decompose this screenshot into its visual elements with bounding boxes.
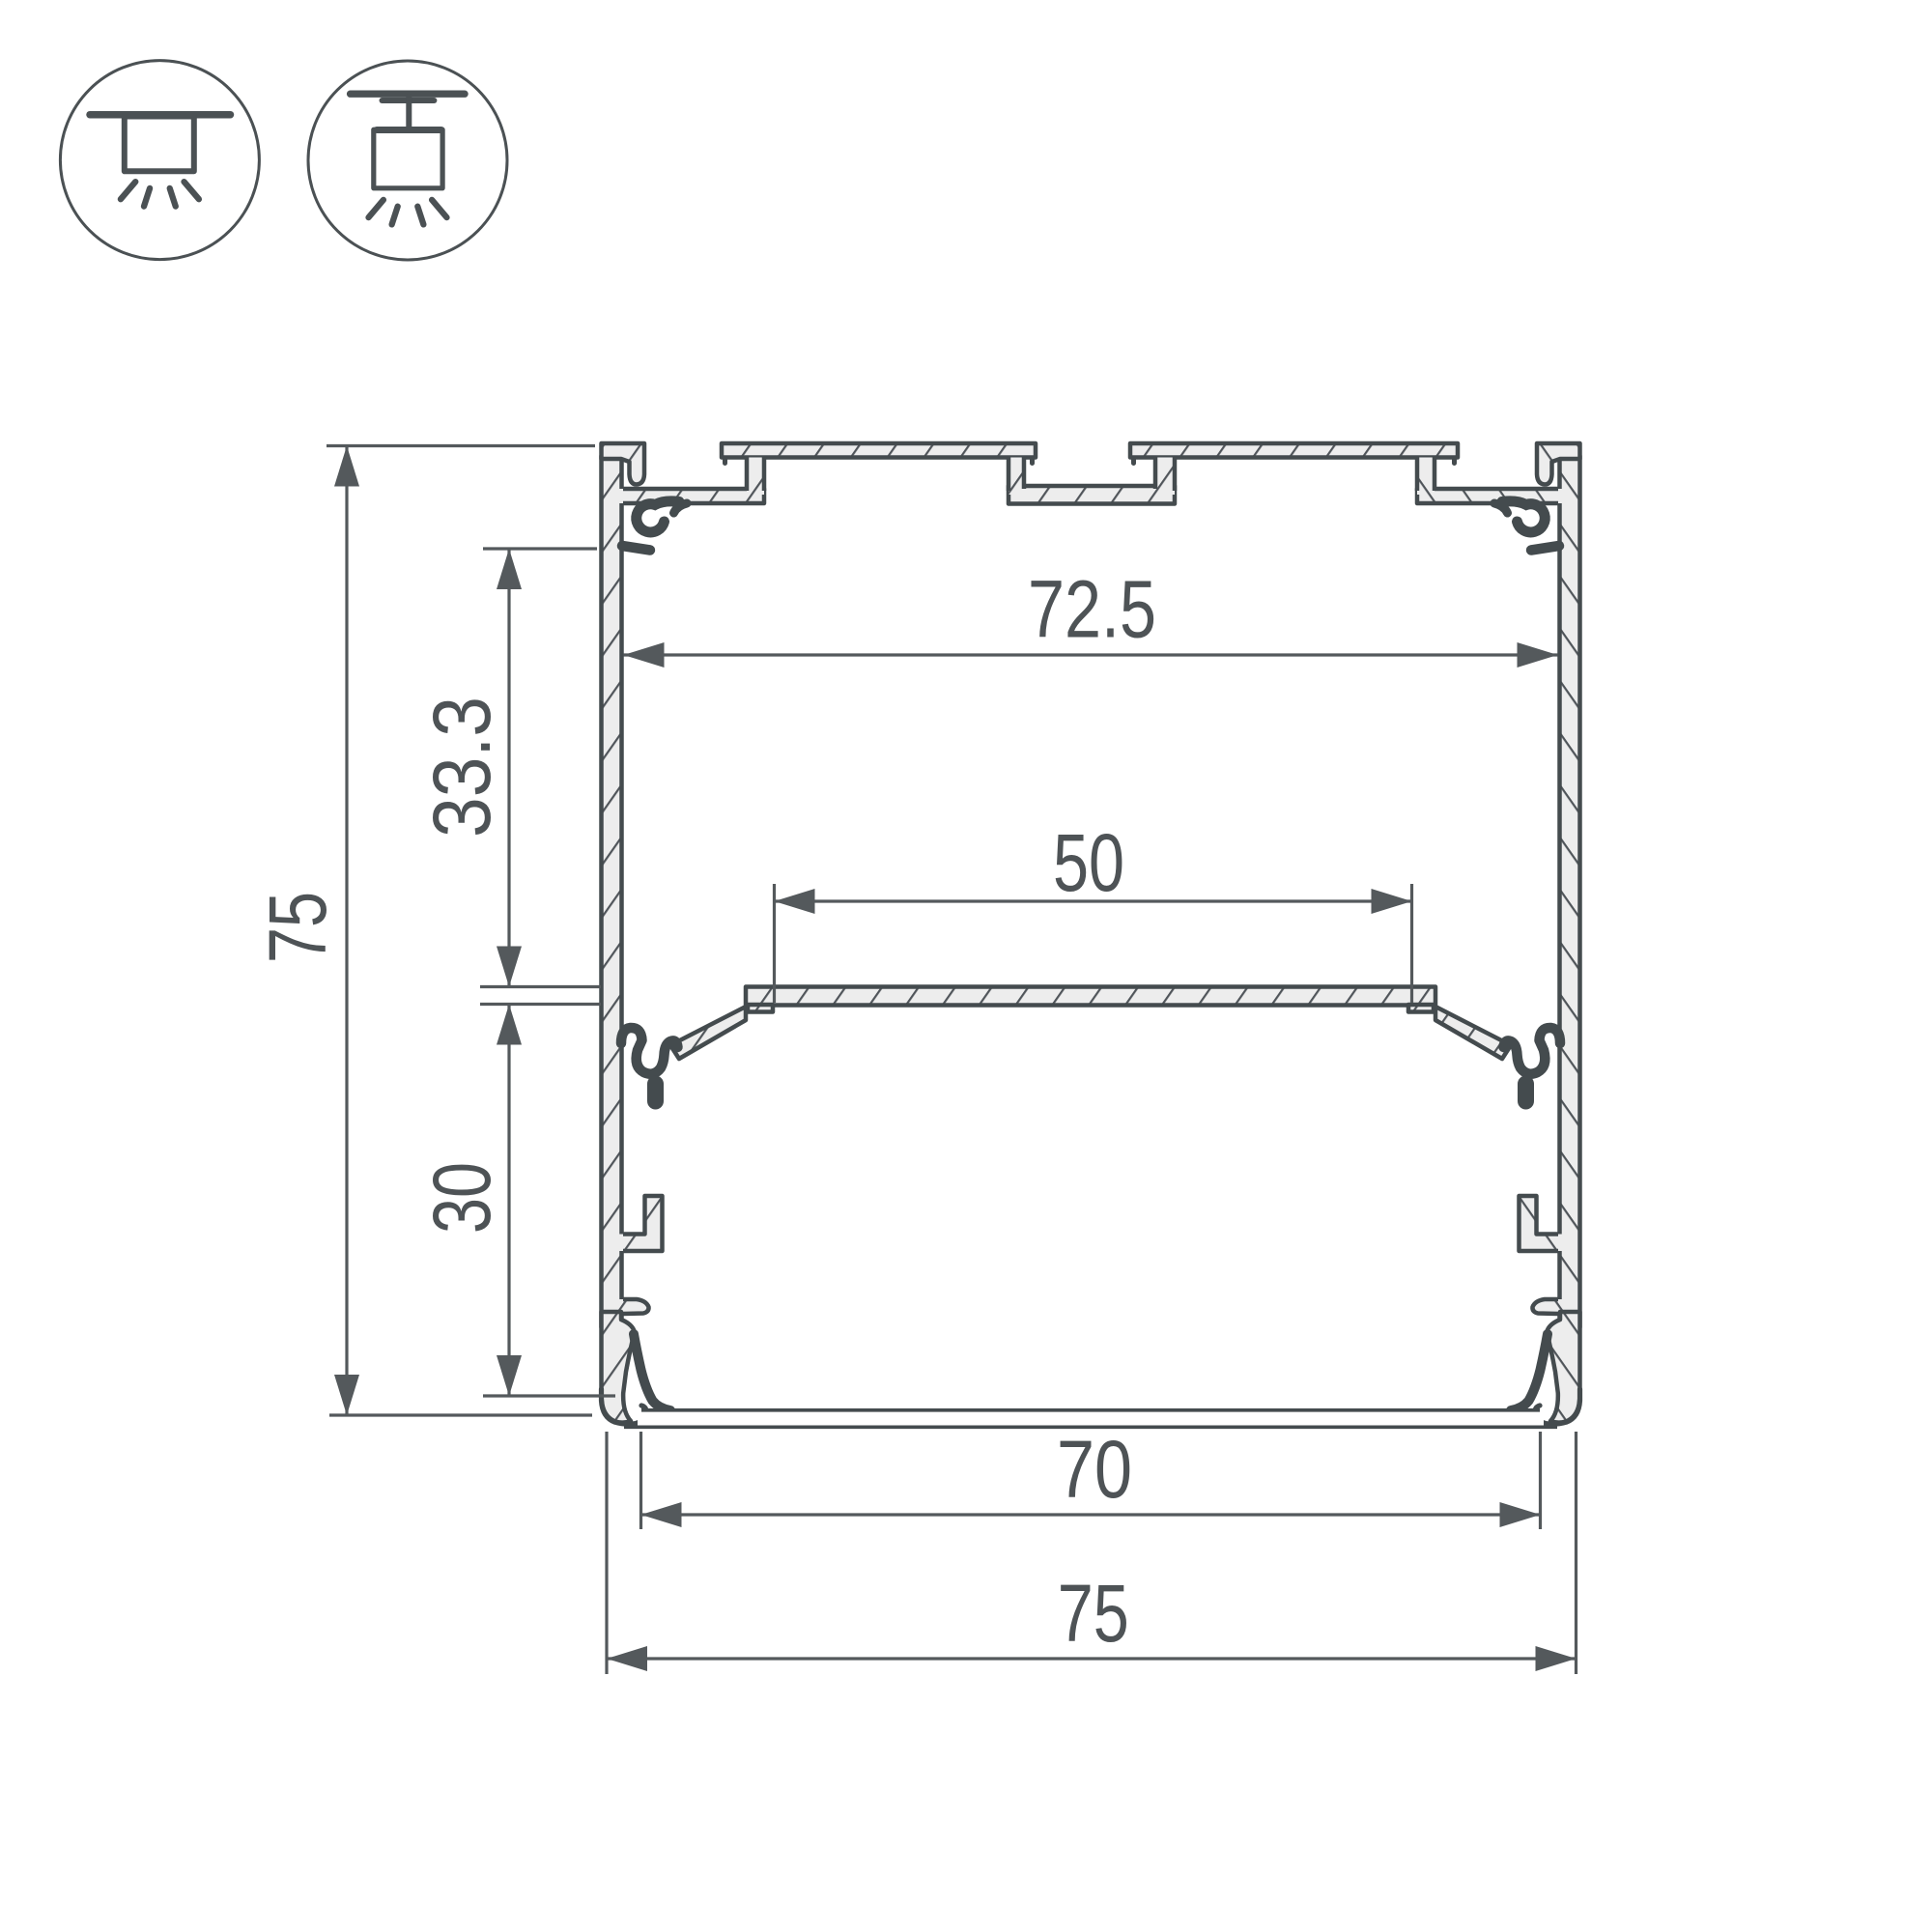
svg-text:72.5: 72.5 [1028,564,1156,655]
svg-text:33.3: 33.3 [416,696,507,838]
svg-text:70: 70 [1057,1424,1132,1515]
svg-text:75: 75 [1058,1568,1129,1659]
svg-text:30: 30 [416,1162,507,1234]
svg-text:50: 50 [1053,817,1124,908]
svg-text:75: 75 [252,892,343,963]
